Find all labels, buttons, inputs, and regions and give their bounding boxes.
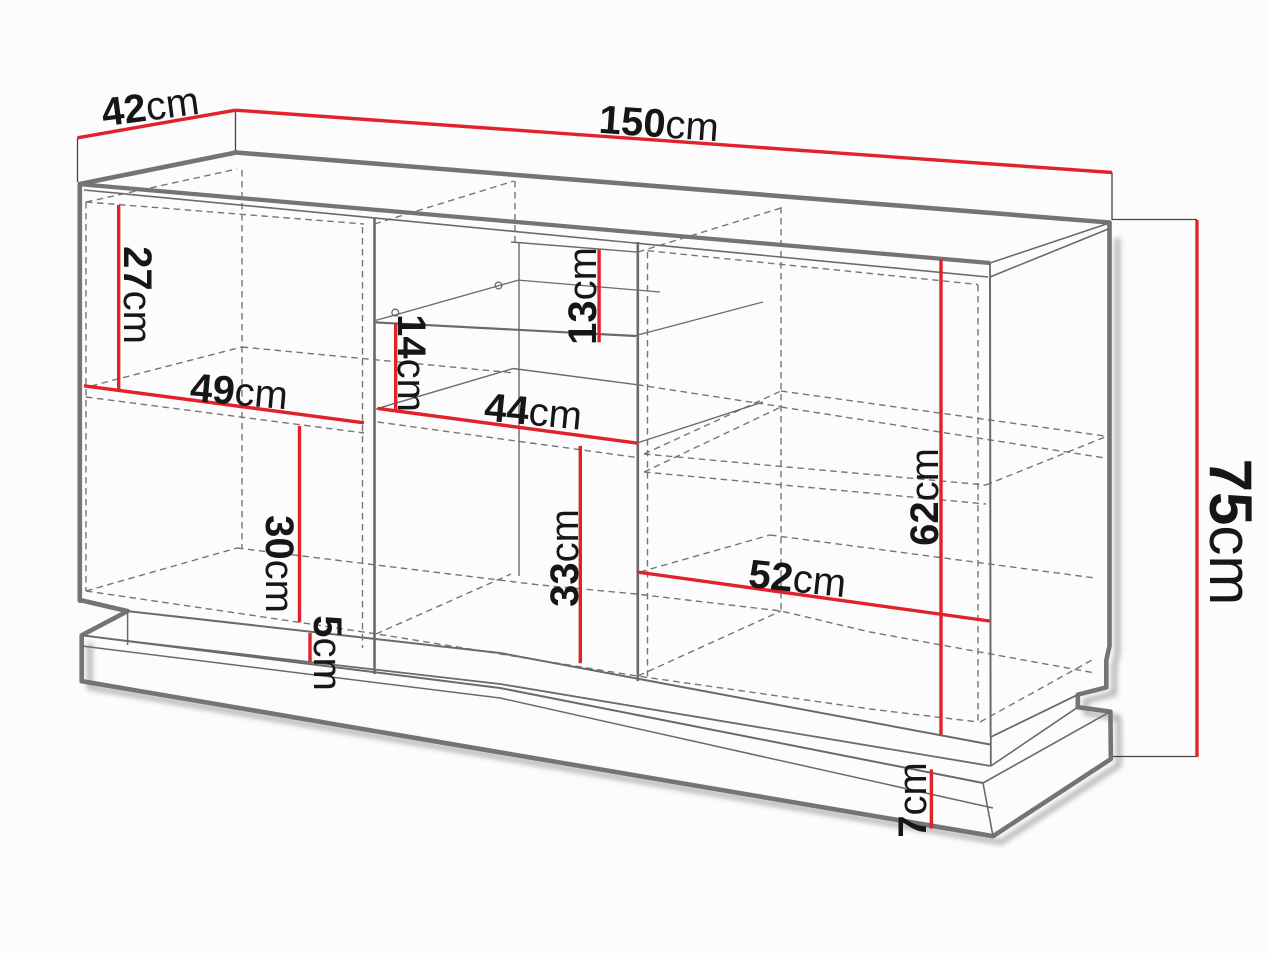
svg-text:33cm: 33cm — [543, 509, 587, 607]
svg-text:13cm: 13cm — [561, 247, 605, 345]
svg-text:5cm: 5cm — [305, 615, 349, 691]
svg-text:75cm: 75cm — [1197, 459, 1264, 606]
svg-text:44cm: 44cm — [482, 385, 584, 438]
svg-text:62cm: 62cm — [903, 448, 947, 546]
svg-text:27cm: 27cm — [115, 246, 159, 344]
svg-text:14cm: 14cm — [389, 314, 433, 412]
svg-text:150cm: 150cm — [597, 98, 720, 150]
svg-text:7cm: 7cm — [891, 762, 935, 838]
svg-text:30cm: 30cm — [257, 515, 301, 613]
svg-text:49cm: 49cm — [188, 366, 289, 418]
